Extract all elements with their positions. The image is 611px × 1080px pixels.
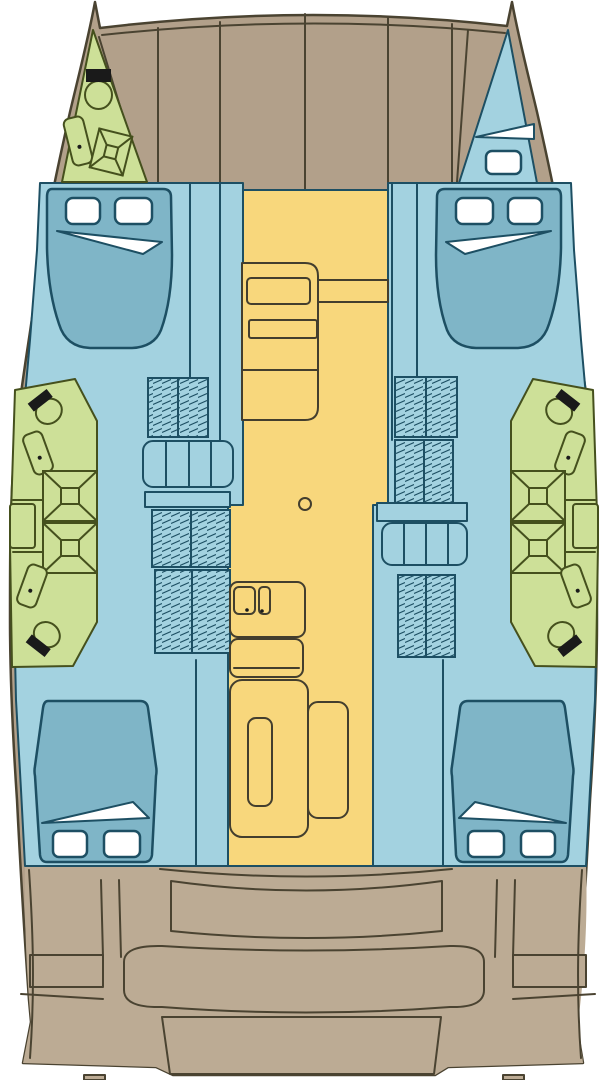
swim-step <box>84 1075 105 1080</box>
sink-basin <box>234 587 255 614</box>
side-seat <box>30 955 103 987</box>
hatch-window <box>66 198 100 224</box>
faucet-dot <box>260 609 264 613</box>
catamaran-deck-plan <box>0 0 611 1080</box>
starboard-aft-cabin <box>452 701 574 862</box>
port-bathroom <box>10 379 97 667</box>
cockpit-table <box>124 946 484 1013</box>
hatch-window <box>53 831 87 857</box>
counter-aft <box>230 639 303 677</box>
hatch-window <box>115 198 152 224</box>
table-leaf <box>248 718 272 806</box>
cockpit-bench <box>171 881 442 938</box>
starboard-forward-cabin <box>436 189 561 348</box>
deck-plan-svg <box>0 0 611 1080</box>
counter-module <box>249 320 317 338</box>
locker <box>10 504 35 548</box>
shower-icon <box>43 523 97 573</box>
faucet-dot <box>245 608 249 612</box>
port-forward-cabin <box>47 189 172 348</box>
port-aft-cabin <box>35 701 157 862</box>
companionway-steps <box>382 523 467 565</box>
shower-icon <box>43 471 97 521</box>
toilet-icon <box>85 69 112 109</box>
transom-platform <box>162 1017 441 1074</box>
hatch-window <box>486 151 521 174</box>
side-seat <box>513 955 586 987</box>
salon-bench <box>308 702 348 818</box>
steps-landing <box>145 492 230 507</box>
steps-landing <box>377 503 467 521</box>
stove-icon <box>247 278 310 304</box>
counter-shelf <box>318 280 388 302</box>
mast-post <box>299 498 311 510</box>
hatch-window <box>104 831 140 857</box>
starboard-bathroom <box>511 379 598 667</box>
swim-step <box>503 1075 524 1080</box>
